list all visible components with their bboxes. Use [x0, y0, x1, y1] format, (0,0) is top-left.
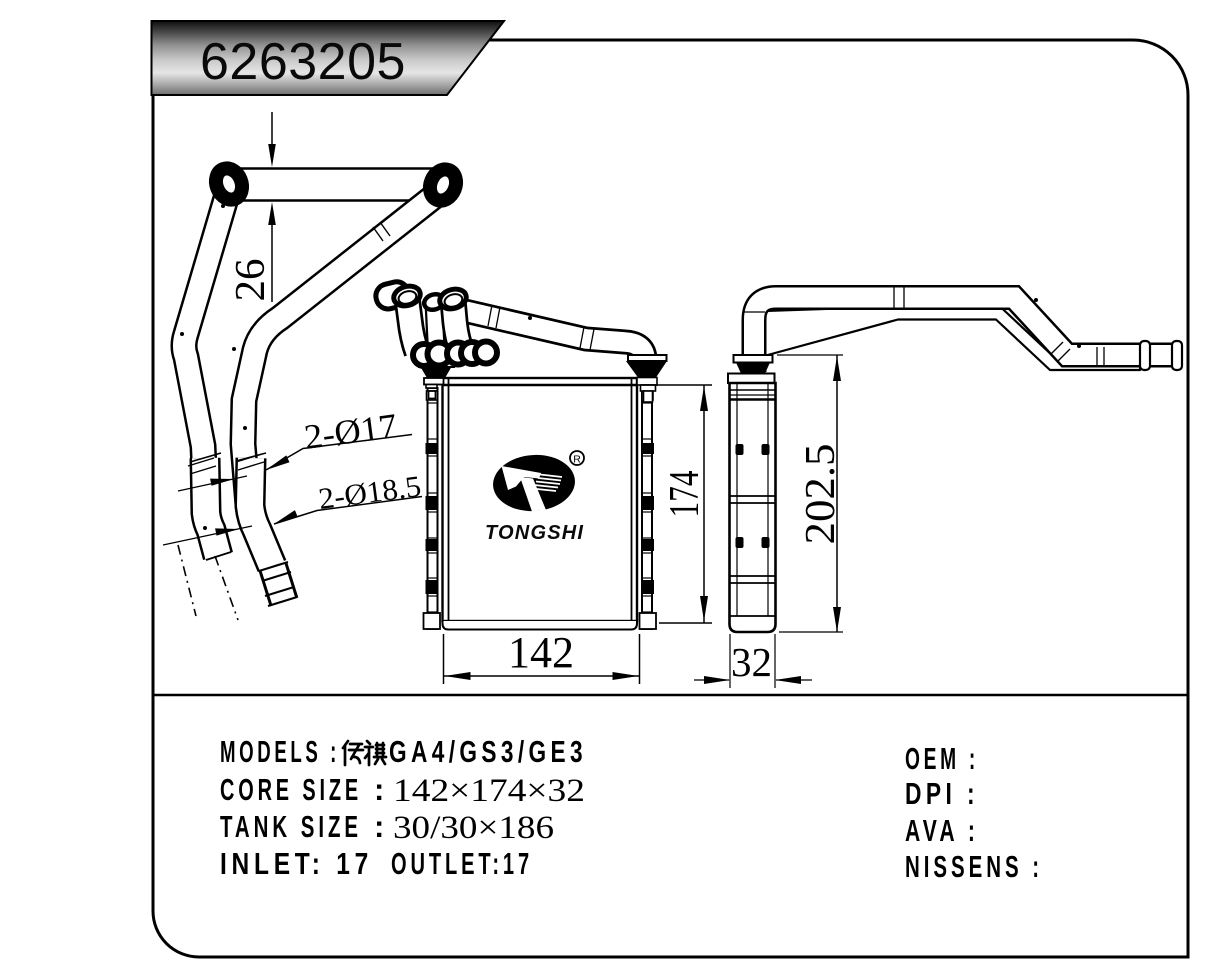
svg-text:AVA :: AVA : [905, 813, 979, 848]
svg-text::: : [374, 772, 390, 807]
svg-text:OEM :: OEM : [905, 741, 979, 776]
svg-text:TONGSHI: TONGSHI [485, 522, 584, 544]
svg-text:26: 26 [228, 259, 274, 302]
svg-text:DPI :: DPI : [905, 776, 979, 811]
svg-text:30/30×186: 30/30×186 [393, 810, 554, 846]
svg-text:INLET: 17: INLET: 17 [220, 846, 373, 881]
svg-text:MODELS :: MODELS : [220, 734, 340, 769]
svg-text:142×174×32: 142×174×32 [393, 773, 585, 809]
svg-text:32: 32 [731, 639, 772, 685]
svg-text:174: 174 [662, 471, 708, 518]
svg-text:R: R [573, 454, 581, 466]
svg-text:142: 142 [508, 628, 574, 677]
svg-text:OUTLET:17: OUTLET:17 [391, 846, 533, 881]
svg-text:6263205: 6263205 [200, 33, 406, 91]
svg-text:TANK SIZE: TANK SIZE [220, 809, 362, 844]
svg-text:CORE SIZE: CORE SIZE [220, 772, 362, 807]
svg-text:NISSENS :: NISSENS : [905, 849, 1043, 884]
svg-text:GA4/GS3/GE3: GA4/GS3/GE3 [389, 734, 587, 769]
svg-text:202.5: 202.5 [798, 444, 844, 545]
svg-text::: : [374, 809, 390, 844]
